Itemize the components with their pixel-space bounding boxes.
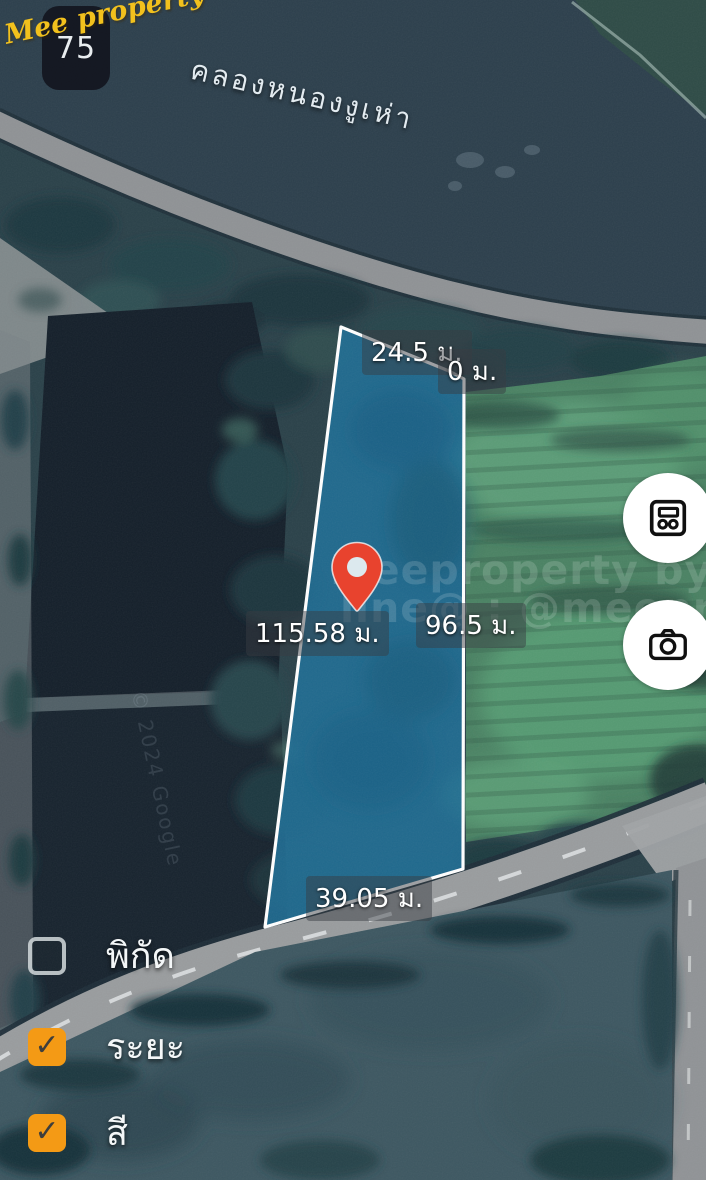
legend-button[interactable] xyxy=(623,473,706,563)
map-screen: 75 Mee property คลองหนองงูเห่า © 2024 Go… xyxy=(0,0,706,1180)
layer-toggle-distance[interactable]: ✓ ระยะ xyxy=(28,1018,185,1075)
camera-button[interactable] xyxy=(623,600,706,690)
checkbox[interactable]: ✓ xyxy=(28,1028,66,1066)
checkbox[interactable]: ✓ xyxy=(28,1114,66,1152)
toggle-label: สี xyxy=(106,1104,128,1161)
measurement-label-zero: 0 ม. xyxy=(438,349,506,394)
check-icon: ✓ xyxy=(34,1117,59,1147)
layer-toggle-color[interactable]: ✓ สี xyxy=(28,1104,128,1161)
map-pin[interactable] xyxy=(328,540,386,615)
measurement-label-right: 96.5 ม. xyxy=(416,603,526,648)
toggle-label: พิกัด xyxy=(106,927,175,984)
measurement-label-bottom: 39.05 ม. xyxy=(306,876,432,921)
camera-icon xyxy=(645,622,691,668)
toggle-label: ระยะ xyxy=(106,1018,185,1075)
measurement-label-left: 115.58 ม. xyxy=(246,611,389,656)
map-pin-icon xyxy=(328,540,386,615)
layer-toggle-coordinates[interactable]: ✓ พิกัด xyxy=(28,927,175,984)
legend-cells-icon xyxy=(645,495,691,541)
check-icon: ✓ xyxy=(34,1031,59,1061)
checkbox[interactable]: ✓ xyxy=(28,937,66,975)
